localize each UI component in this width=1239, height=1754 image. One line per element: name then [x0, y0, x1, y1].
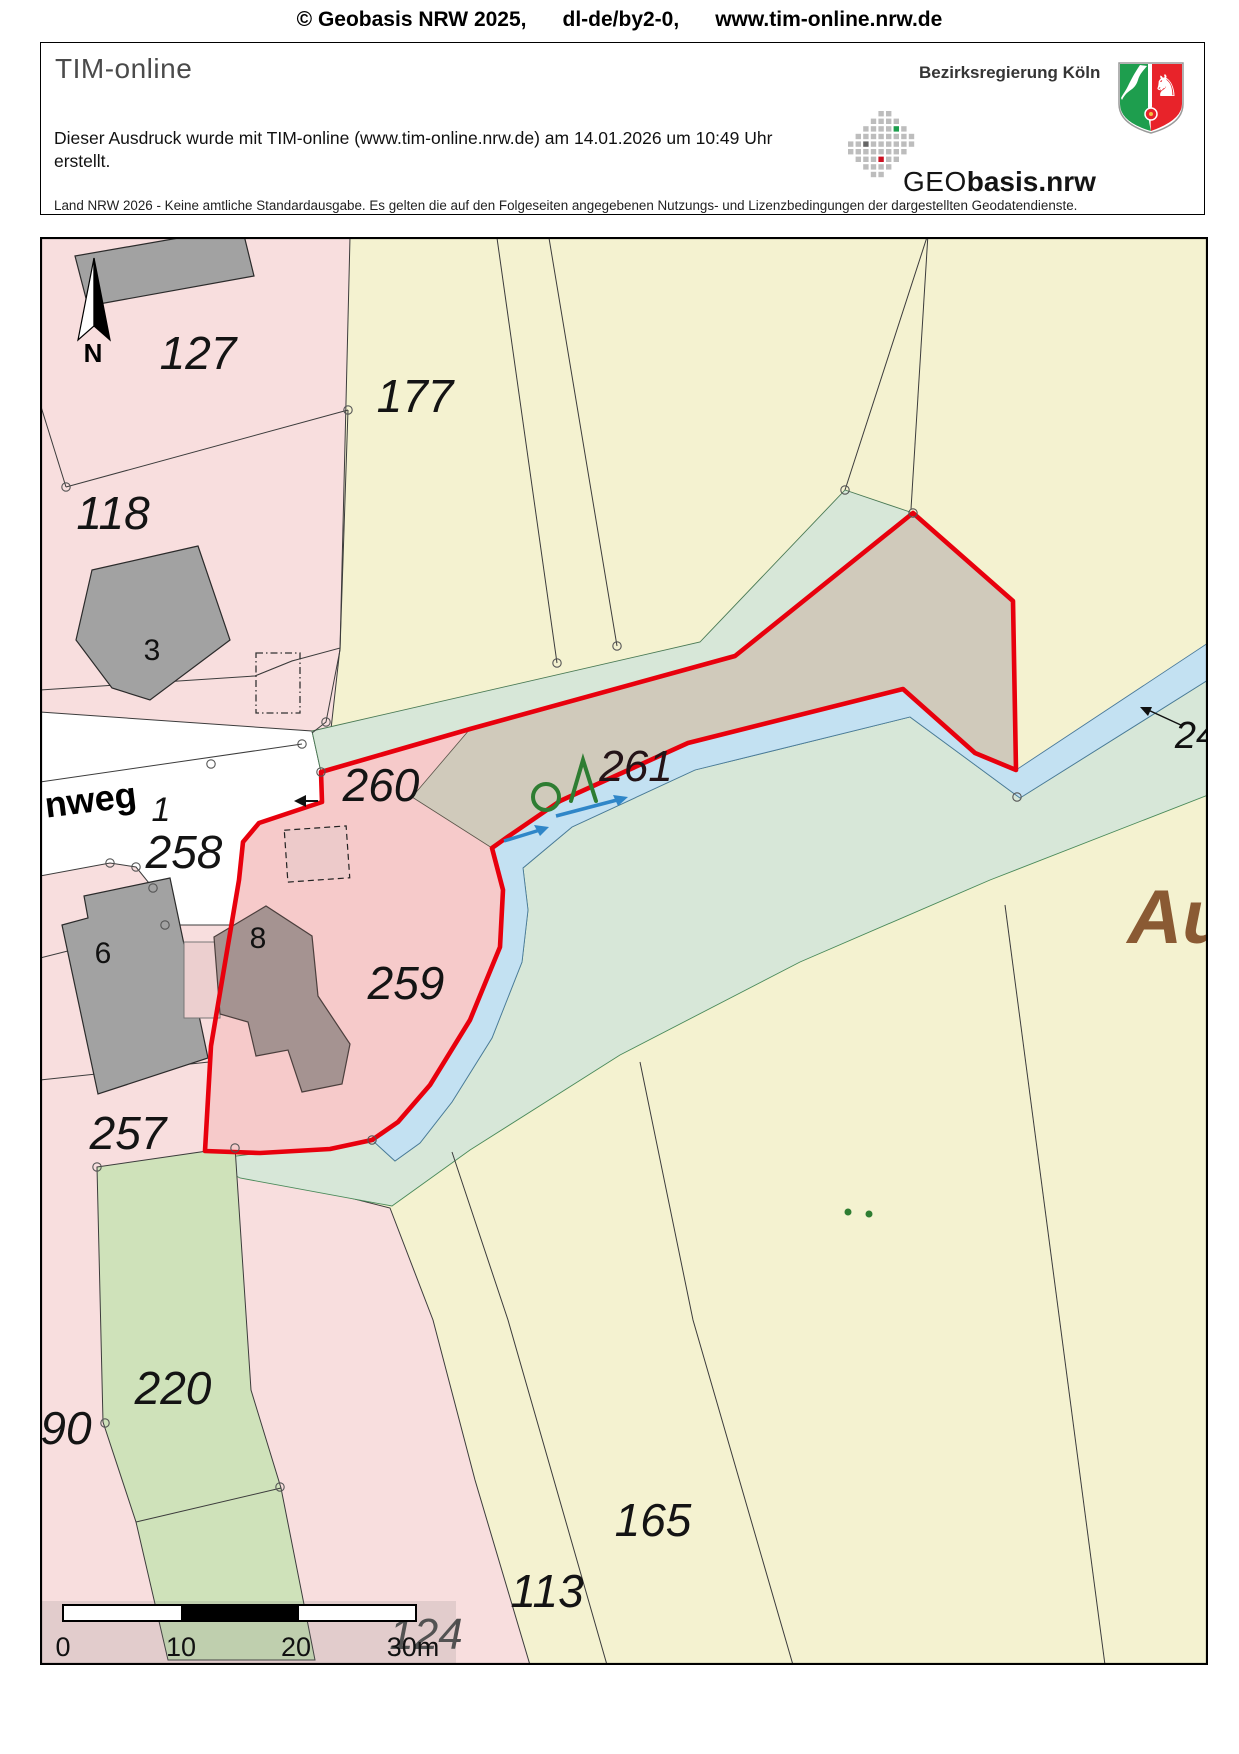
pixel-square — [878, 134, 883, 139]
pixel-square — [878, 149, 883, 154]
pixel-square — [894, 134, 899, 139]
copyright-text: © Geobasis NRW 2025, — [297, 8, 527, 32]
vegetation-dot — [866, 1211, 873, 1218]
nrw-coat-of-arms-icon: ♞ — [1118, 62, 1184, 134]
pixel-square — [848, 141, 853, 146]
pixel-square — [863, 134, 868, 139]
pixel-square — [894, 149, 899, 154]
pixel-square — [878, 164, 883, 169]
pixel-square — [894, 126, 899, 131]
pixel-square — [901, 149, 906, 154]
map-label-6: 6 — [95, 937, 112, 970]
pixel-square — [856, 157, 861, 162]
map-label-177: 177 — [377, 370, 455, 422]
pixel-square — [894, 141, 899, 146]
pixel-square — [909, 134, 914, 139]
authority-label: Bezirksregierung Köln — [919, 63, 1100, 83]
pixel-square — [863, 149, 868, 154]
map-label-257: 257 — [89, 1107, 168, 1159]
scale-bar: 0102030m — [40, 1601, 456, 1665]
copyright-line: © Geobasis NRW 2025, dl-de/by2-0, www.ti… — [0, 8, 1239, 32]
disclaimer-text: Land NRW 2026 - Keine amtliche Standarda… — [54, 198, 1077, 213]
vegetation-dot — [845, 1209, 852, 1216]
map-label-N: N — [84, 338, 103, 368]
pixel-square — [848, 149, 853, 154]
pixel-square — [871, 141, 876, 146]
pixel-square — [886, 126, 891, 131]
pixel-square — [856, 141, 861, 146]
pixel-square — [871, 126, 876, 131]
scalebar-tick-30m: 30m — [387, 1632, 440, 1662]
pixel-square — [871, 119, 876, 124]
pixel-square — [878, 111, 883, 116]
license-text: dl-de/by2-0, — [563, 8, 680, 32]
pixel-square — [863, 126, 868, 131]
scalebar-tick-10: 10 — [166, 1632, 196, 1662]
horse-glyph: ♞ — [1153, 70, 1180, 103]
website-text: www.tim-online.nrw.de — [715, 8, 942, 32]
pixel-square — [871, 157, 876, 162]
map-label-258: 258 — [145, 826, 223, 878]
map-label-8: 8 — [250, 922, 267, 955]
geobasis-logo-text: GEObasis.nrw — [903, 166, 1096, 198]
pixel-square — [886, 119, 891, 124]
pixel-square — [901, 126, 906, 131]
map-label-1: 1 — [152, 791, 171, 829]
map-label-259: 259 — [367, 957, 445, 1009]
pixel-square — [856, 149, 861, 154]
map-label-220: 220 — [134, 1362, 212, 1414]
pixel-square — [863, 164, 868, 169]
geobasis-logo: GEObasis.nrw — [846, 109, 1146, 189]
pixel-square — [886, 164, 891, 169]
pixel-square — [894, 157, 899, 162]
print-page: © Geobasis NRW 2025, dl-de/by2-0, www.ti… — [0, 0, 1239, 1754]
pixel-square — [878, 119, 883, 124]
scalebar-tick-20: 20 — [281, 1632, 311, 1662]
pixel-square — [886, 134, 891, 139]
pixel-square — [871, 134, 876, 139]
map-label-24: 24 — [1174, 715, 1208, 757]
pixel-square — [871, 172, 876, 177]
annex-building — [184, 942, 220, 1018]
pixel-square — [886, 111, 891, 116]
logo-basis-text: basis.nrw — [967, 166, 1096, 197]
map-label-90: 90 — [40, 1402, 92, 1454]
pixel-square — [909, 141, 914, 146]
map-label-113: 113 — [510, 1565, 584, 1617]
pixel-square — [878, 172, 883, 177]
garage-dashed — [284, 826, 349, 882]
pixel-square — [863, 157, 868, 162]
created-text: Dieser Ausdruck wurde mit TIM-online (ww… — [54, 127, 816, 173]
pixel-square — [878, 141, 883, 146]
pixel-square — [894, 119, 899, 124]
header-box: TIM-online Bezirksregierung Köln GEObasi… — [40, 42, 1205, 215]
pixel-square — [886, 141, 891, 146]
map-label-Au: Au — [1125, 875, 1208, 960]
pixel-square — [871, 149, 876, 154]
app-title: TIM-online — [55, 53, 192, 85]
pixel-square — [886, 149, 891, 154]
pixel-square — [871, 164, 876, 169]
map-label-260: 260 — [342, 759, 420, 811]
map-label-261: 261 — [598, 742, 672, 791]
logo-geo-text: GEO — [903, 166, 967, 197]
pixel-square — [878, 157, 883, 162]
pixel-square — [886, 157, 891, 162]
pixel-square — [878, 126, 883, 131]
pixel-square — [901, 141, 906, 146]
map-label-3: 3 — [144, 634, 161, 667]
scalebar-tick-0: 0 — [55, 1632, 70, 1662]
map-label-118: 118 — [76, 487, 150, 539]
pixel-square — [863, 141, 868, 146]
map-label-127: 127 — [160, 327, 238, 379]
pixel-square — [901, 134, 906, 139]
pixel-square — [856, 134, 861, 139]
map-label-165: 165 — [615, 1494, 692, 1546]
map-canvas: 1271181772582602612592572209016511312412… — [40, 237, 1208, 1665]
